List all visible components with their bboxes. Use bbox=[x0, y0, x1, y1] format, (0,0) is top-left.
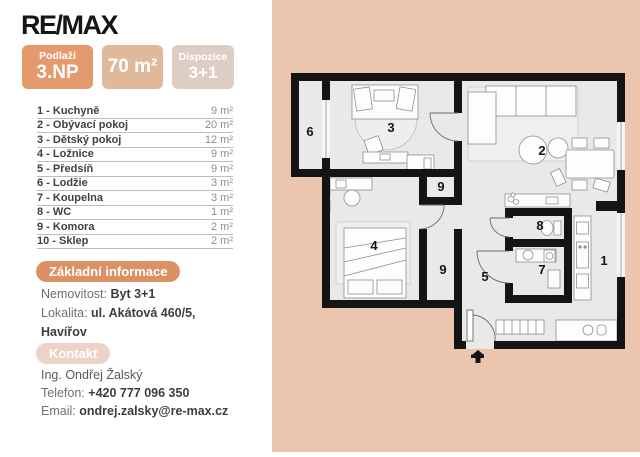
property-label: Nemovitost: bbox=[41, 287, 107, 301]
agent-name: Ing. Ondřej Žalský bbox=[41, 366, 228, 384]
table-row: 5 - Předsíň9 m² bbox=[37, 162, 233, 177]
room-label-8: 8 bbox=[536, 218, 543, 233]
table-row: 9 - Komora2 m² bbox=[37, 220, 233, 235]
location-label: Lokalita: bbox=[41, 306, 88, 320]
room-label-6: 6 bbox=[306, 124, 313, 139]
location-line2: Havířov bbox=[41, 323, 196, 342]
badge-layout-value: 3+1 bbox=[189, 64, 218, 82]
room-label-9b: 9 bbox=[439, 262, 446, 277]
room-label-5: 5 bbox=[481, 269, 488, 284]
location-value: ul. Akátová 460/5, bbox=[91, 306, 195, 320]
room-area: 12 m² bbox=[205, 134, 233, 146]
room-name: 7 - Koupelna bbox=[37, 192, 103, 204]
room-table: 1 - Kuchyně9 m² 2 - Obývací pokoj20 m² 3… bbox=[37, 104, 233, 249]
table-row: 6 - Lodžie3 m² bbox=[37, 177, 233, 192]
remax-logo: RE/MAX bbox=[21, 10, 117, 41]
room-area: 20 m² bbox=[205, 119, 233, 131]
table-row: 1 - Kuchyně9 m² bbox=[37, 104, 233, 119]
room-label-7: 7 bbox=[538, 262, 545, 277]
room-name: 3 - Dětský pokoj bbox=[37, 134, 121, 146]
phone-line: Telefon: +420 777 096 350 bbox=[41, 384, 228, 402]
room-label-2: 2 bbox=[538, 143, 545, 158]
room-name: 5 - Předsíň bbox=[37, 163, 93, 175]
table-row: 8 - WC1 m² bbox=[37, 206, 233, 221]
room-area: 3 m² bbox=[211, 177, 233, 189]
basic-info-block: Nemovitost: Byt 3+1 Lokalita: ul. Akátov… bbox=[41, 285, 196, 342]
room-area: 9 m² bbox=[211, 148, 233, 160]
contact-block: Ing. Ondřej Žalský Telefon: +420 777 096… bbox=[41, 366, 228, 420]
room-area: 9 m² bbox=[211, 105, 233, 117]
floor-plan: 6 3 2 9 4 9 5 8 7 1 bbox=[272, 0, 640, 452]
room-label-4: 4 bbox=[370, 238, 378, 253]
badge-layout: Dispozice 3+1 bbox=[172, 45, 234, 89]
badge-area: 70 m² bbox=[102, 45, 163, 89]
table-row: 4 - Ložnice9 m² bbox=[37, 148, 233, 163]
room-area: 2 m² bbox=[211, 221, 233, 233]
email-line: Email: ondrej.zalsky@re-max.cz bbox=[41, 402, 228, 420]
room-label-3: 3 bbox=[387, 120, 394, 135]
property-line: Nemovitost: Byt 3+1 bbox=[41, 285, 196, 304]
room-name: 8 - WC bbox=[37, 206, 71, 218]
table-row: 2 - Obývací pokoj20 m² bbox=[37, 119, 233, 134]
table-row: 7 - Koupelna3 m² bbox=[37, 191, 233, 206]
table-row: 3 - Dětský pokoj12 m² bbox=[37, 133, 233, 148]
info-panel: RE/MAX Podlaží 3.NP 70 m² Dispozice 3+1 … bbox=[0, 0, 272, 452]
location-line: Lokalita: ul. Akátová 460/5, bbox=[41, 304, 196, 323]
room-label-1: 1 bbox=[600, 253, 607, 268]
basic-info-pill: Základní informace bbox=[36, 261, 180, 282]
room-area: 2 m² bbox=[211, 235, 233, 247]
email-value: ondrej.zalsky@re-max.cz bbox=[79, 404, 228, 418]
room-name: 10 - Sklep bbox=[37, 235, 88, 247]
property-badges: Podlaží 3.NP 70 m² Dispozice 3+1 bbox=[22, 45, 234, 89]
badge-floor-value: 3.NP bbox=[36, 63, 78, 83]
badge-floor-label: Podlaží bbox=[39, 51, 76, 62]
room-name: 9 - Komora bbox=[37, 221, 94, 233]
room-name: 6 - Lodžie bbox=[37, 177, 88, 189]
room-name: 4 - Ložnice bbox=[37, 148, 94, 160]
phone-label: Telefon: bbox=[41, 386, 85, 400]
contact-pill: Kontakt bbox=[36, 343, 110, 364]
room-area: 9 m² bbox=[211, 163, 233, 175]
property-value: Byt 3+1 bbox=[110, 287, 155, 301]
location-city: Havířov bbox=[41, 325, 87, 339]
room-area: 3 m² bbox=[211, 192, 233, 204]
room-label-9a: 9 bbox=[437, 179, 444, 194]
phone-value: +420 777 096 350 bbox=[88, 386, 189, 400]
room-name: 2 - Obývací pokoj bbox=[37, 119, 128, 131]
room-area: 1 m² bbox=[211, 206, 233, 218]
table-row: 10 - Sklep2 m² bbox=[37, 235, 233, 250]
badge-floor: Podlaží 3.NP bbox=[22, 45, 93, 89]
email-label: Email: bbox=[41, 404, 76, 418]
floorplan-panel: 6 3 2 9 4 9 5 8 7 1 bbox=[272, 0, 640, 452]
room-name: 1 - Kuchyně bbox=[37, 105, 99, 117]
badge-area-value: 70 m² bbox=[108, 57, 158, 77]
entrance-arrow-icon bbox=[471, 350, 484, 363]
badge-layout-label: Dispozice bbox=[178, 52, 227, 63]
